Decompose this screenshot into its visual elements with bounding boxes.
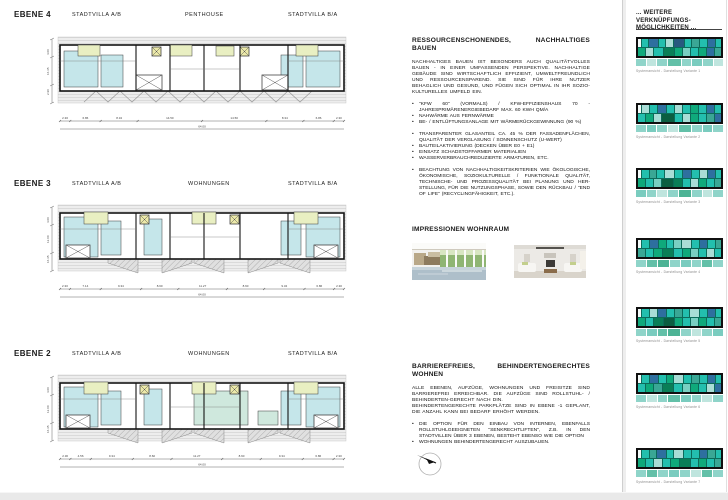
mosaic-cell <box>646 114 653 122</box>
floorplan-level-2: 16.3512.004.002.304.569.348.6011.278.609… <box>44 366 360 478</box>
sustainability-bullets-energy: "KFW 60" (VORMALS) / KFW-EFFIZIENSHAUS 7… <box>412 102 590 126</box>
facade-variant-panel: Systemansicht - Darstellung Variante 7 <box>636 448 723 484</box>
facade-mosaic <box>636 168 723 189</box>
mosaic-cell <box>700 375 707 383</box>
mosaic-cell <box>658 395 668 402</box>
mosaic-cell <box>692 39 699 47</box>
mosaic-cell <box>675 114 682 122</box>
impressions-section: IMPRESSIONEN WOHNRAUM <box>412 226 590 238</box>
facade-variant-panel: Systemansicht - Darstellung Variante 6 <box>636 373 723 409</box>
variant-caption: Systemansicht - Darstellung Variante 1 <box>636 69 723 73</box>
mosaic-cell <box>703 125 713 132</box>
level-4-unit-right: STADTVILLA B/A <box>288 12 338 18</box>
page-right-edge <box>726 0 727 500</box>
mosaic-cell <box>680 459 689 467</box>
bottom-strip <box>0 492 728 500</box>
mosaic-cell <box>708 170 715 178</box>
mosaic-cell <box>657 59 667 66</box>
mosaic-cell <box>663 459 670 467</box>
mosaic-cell <box>646 249 653 257</box>
mosaic-cell <box>659 39 666 47</box>
mosaic-cell <box>692 260 702 267</box>
mosaic-cell <box>663 249 674 257</box>
mosaic-cell <box>638 170 641 178</box>
mosaic-cell <box>654 114 661 122</box>
mosaic-base-band <box>636 260 723 267</box>
mosaic-cell <box>691 105 698 113</box>
facade-mosaic <box>636 238 723 259</box>
mosaic-cell <box>683 249 690 257</box>
mosaic-cell <box>713 329 723 336</box>
mosaic-cell <box>683 105 690 113</box>
variant-caption: Systemansicht - Darstellung Variante 5 <box>636 339 723 343</box>
level-2-unit-left: STADTVILLA A/B <box>72 351 121 357</box>
mosaic-cell <box>715 179 721 187</box>
level-4-title: EBENE 4 <box>14 10 51 19</box>
mosaic-cell <box>658 260 670 267</box>
facade-variant-panel: Systemansicht - Darstellung Variante 3 <box>636 168 723 204</box>
mosaic-cell <box>649 39 657 47</box>
mosaic-cell <box>683 309 690 317</box>
svg-text:6.86: 6.86 <box>315 454 321 458</box>
facade-variant-panel: Systemansicht - Darstellung Variante 1 <box>636 37 723 73</box>
level-2-title: EBENE 2 <box>14 349 51 358</box>
mosaic-cell <box>654 179 661 187</box>
mosaic-cell <box>699 384 706 392</box>
mosaic-cell <box>716 309 722 317</box>
svg-text:9.34: 9.34 <box>109 454 115 458</box>
mosaic-cell <box>682 240 691 248</box>
svg-text:16.35: 16.35 <box>46 425 50 433</box>
accessibility-bullets: DIE OPTION FÜR DEN EINBAU VON INTERNEN, … <box>412 422 590 446</box>
level-3-unit-left: STADTVILLA A/B <box>72 181 121 187</box>
svg-text:16.35: 16.35 <box>46 255 50 263</box>
svg-text:8.60: 8.60 <box>149 454 155 458</box>
sustainability-intro: NACHHALTIGES BAUEN IST BESONDERS AUCH QU… <box>412 60 590 96</box>
photo-interior-window-view <box>412 243 486 280</box>
mosaic-cell <box>636 395 646 402</box>
mosaic-cell <box>702 329 712 336</box>
mosaic-cell <box>700 170 707 178</box>
facade-mosaic <box>636 448 723 469</box>
svg-text:11.27: 11.27 <box>193 454 201 458</box>
mosaic-cell <box>708 39 715 47</box>
mosaic-cell <box>638 309 641 317</box>
mosaic-cell <box>638 240 641 248</box>
mosaic-cell <box>683 48 690 56</box>
mosaic-cell <box>666 39 673 47</box>
svg-text:2.30: 2.30 <box>336 454 342 458</box>
mosaic-cell <box>713 395 723 402</box>
mosaic-cell <box>691 114 698 122</box>
mosaic-cell <box>692 240 699 248</box>
mosaic-cell <box>692 329 702 336</box>
facade-variant-panel: Systemansicht - Darstellung Variante 2 <box>636 103 723 139</box>
svg-text:8.34: 8.34 <box>116 116 122 120</box>
svg-text:2.90: 2.90 <box>46 89 50 95</box>
photo-living-room-fireplace <box>514 245 586 278</box>
sidebar-title-line1: ... WEITERE VERKNÜPFUNGS- <box>636 10 691 24</box>
mosaic-cell <box>674 179 682 187</box>
mosaic-cell <box>638 39 641 47</box>
mosaic-cell <box>636 329 646 336</box>
mosaic-cell <box>642 309 649 317</box>
mosaic-cell <box>692 190 702 197</box>
mosaic-cell <box>700 39 707 47</box>
mosaic-cell <box>668 329 680 336</box>
mosaic-cell <box>691 470 701 477</box>
mosaic-cell <box>659 375 666 383</box>
mosaic-base-band <box>636 59 723 66</box>
mosaic-cell <box>675 48 682 56</box>
mosaic-cell <box>667 240 674 248</box>
mosaic-cell <box>715 384 721 392</box>
svg-text:64.00: 64.00 <box>198 463 206 467</box>
svg-text:8.60: 8.60 <box>239 454 245 458</box>
mosaic-cell <box>716 39 721 47</box>
mosaic-cell <box>692 450 699 458</box>
mosaic-cell <box>654 48 663 56</box>
facade-variant-panel: Systemansicht - Darstellung Variante 5 <box>636 307 723 343</box>
mosaic-cell <box>713 125 723 132</box>
mosaic-cell <box>679 125 692 132</box>
svg-text:6.86: 6.86 <box>83 116 89 120</box>
mosaic-cell <box>642 105 649 113</box>
bullet-item: DIE OPTION FÜR DEN EINBAU VON INTERNEN, … <box>412 422 590 440</box>
sidebar-title-line2: MÖGLICHKEITEN ... <box>636 25 696 31</box>
mosaic-cell <box>650 309 657 317</box>
mosaic-cell <box>650 450 657 458</box>
mosaic-cell <box>654 249 661 257</box>
mosaic-cell <box>715 459 721 467</box>
mosaic-cell <box>654 318 662 326</box>
mosaic-cell <box>715 48 721 56</box>
mosaic-cell <box>650 240 658 248</box>
svg-text:64.00: 64.00 <box>198 125 206 129</box>
mosaic-cell <box>691 459 698 467</box>
svg-text:8.60: 8.60 <box>243 284 249 288</box>
mosaic-cell <box>667 450 674 458</box>
mosaic-cell <box>657 170 664 178</box>
svg-text:4.00: 4.00 <box>46 49 50 55</box>
mosaic-cell <box>642 375 649 383</box>
mosaic-cell <box>708 309 715 317</box>
mosaic-cell <box>650 105 657 113</box>
mosaic-cell <box>654 459 661 467</box>
variant-caption: Systemansicht - Darstellung Variante 2 <box>636 135 723 139</box>
mosaic-cell <box>707 105 714 113</box>
mosaic-cell <box>682 59 692 66</box>
mosaic-cell <box>638 48 645 56</box>
mosaic-cell <box>700 240 707 248</box>
mosaic-cell <box>636 125 646 132</box>
mosaic-cell <box>692 125 702 132</box>
mosaic-cell <box>691 249 698 257</box>
level-2-unit-mid: WOHNUNGEN <box>188 351 230 357</box>
mosaic-cell <box>674 375 683 383</box>
mosaic-cell <box>642 170 649 178</box>
mosaic-cell <box>699 459 706 467</box>
mosaic-cell <box>699 48 706 56</box>
mosaic-cell <box>683 114 690 122</box>
mosaic-cell <box>691 318 698 326</box>
svg-text:4.56: 4.56 <box>78 454 84 458</box>
svg-text:6.86: 6.86 <box>316 284 322 288</box>
mosaic-cell <box>636 470 646 477</box>
mosaic-cell <box>662 114 673 122</box>
mosaic-cell <box>716 375 721 383</box>
mosaic-base-band <box>636 125 723 132</box>
floorplan-level-4: 2.9016.354.002.306.868.3414.5014.508.346… <box>44 28 360 140</box>
mosaic-cell <box>669 470 679 477</box>
mosaic-cell <box>683 384 690 392</box>
mosaic-cell <box>668 395 680 402</box>
mosaic-cell <box>715 114 721 122</box>
facade-variant-panel: Systemansicht - Darstellung Variante 4 <box>636 238 723 274</box>
mosaic-cell <box>638 459 645 467</box>
accessibility-paragraph-1: ALLE EBENEN, AUFZÜGE, WOHNUNGEN UND FREI… <box>412 386 590 404</box>
mosaic-cell <box>692 170 699 178</box>
mosaic-cell <box>715 105 721 113</box>
mosaic-cell <box>647 395 657 402</box>
mosaic-cell <box>657 125 667 132</box>
presentation-board: EBENE 4 STADTVILLA A/B PENTHOUSE STADTVI… <box>0 0 728 500</box>
mosaic-cell <box>708 375 715 383</box>
mosaic-cell <box>650 375 658 383</box>
mosaic-cell <box>684 450 691 458</box>
bullet-item: BE- / ENTLÜFTUNGSANLAGE MIT WÄRMERÜCKGEW… <box>412 120 590 126</box>
mosaic-cell <box>647 125 657 132</box>
mosaic-cell <box>658 329 668 336</box>
mosaic-cell <box>647 59 657 66</box>
level-4-unit-left: STADTVILLA A/B <box>72 12 121 18</box>
mosaic-cell <box>642 39 649 47</box>
svg-text:6.86: 6.86 <box>316 116 322 120</box>
bullet-item: TRANSPARENTER GLASANTEIL CA. 45 % DER FA… <box>412 132 590 144</box>
sheet-edge-shadow <box>623 0 626 500</box>
mosaic-cell <box>679 190 692 197</box>
mosaic-base-band <box>636 395 723 402</box>
svg-text:14.50: 14.50 <box>166 116 174 120</box>
svg-text:2.30: 2.30 <box>62 116 68 120</box>
mosaic-base-band <box>636 470 723 477</box>
mosaic-cell <box>681 260 691 267</box>
variant-caption: Systemansicht - Darstellung Variante 4 <box>636 270 723 274</box>
mosaic-cell <box>657 190 667 197</box>
bullet-item: "KFW 60" (VORMALS) / KFW-EFFIZIENSHAUS 7… <box>412 102 590 114</box>
accessibility-title: BARRIEREFREIES, BEHINDERTENGERECHTES WOH… <box>412 363 590 379</box>
mosaic-cell <box>668 125 678 132</box>
sustainability-bullets-criteria: BEACHTUNG VON NACHHALTIGKEITSKRITERIEN W… <box>412 168 590 198</box>
mosaic-cell <box>671 459 680 467</box>
svg-text:4.00: 4.00 <box>46 387 50 393</box>
mosaic-cell <box>657 450 665 458</box>
accessibility-paragraph-2: BEHINDERTENGERECHTE PARKPLÄTZE SIND IN E… <box>412 404 590 416</box>
mosaic-cell <box>667 105 674 113</box>
mosaic-cell <box>707 114 714 122</box>
sidebar-title-rule <box>636 29 722 30</box>
mosaic-cell <box>691 48 698 56</box>
mosaic-cell <box>707 384 714 392</box>
mosaic-cell <box>702 395 712 402</box>
mosaic-base-band <box>636 329 723 336</box>
mosaic-cell <box>675 309 682 317</box>
mosaic-cell <box>646 459 653 467</box>
mosaic-cell <box>691 384 698 392</box>
impressions-title: IMPRESSIONEN WOHNRAUM <box>412 226 590 234</box>
variant-caption: Systemansicht - Darstellung Variante 7 <box>636 480 723 484</box>
mosaic-cell <box>707 249 714 257</box>
svg-text:2.30: 2.30 <box>336 284 342 288</box>
mosaic-cell <box>708 450 715 458</box>
bullet-item: BEACHTUNG VON NACHHALTIGKEITSKRITERIEN W… <box>412 168 590 198</box>
mosaic-cell <box>674 249 681 257</box>
mosaic-cell <box>664 318 675 326</box>
mosaic-cell <box>638 384 645 392</box>
floorplan-level-3: 16.3512.004.002.307.149.348.6011.278.609… <box>44 196 360 308</box>
mosaic-cell <box>647 190 657 197</box>
mosaic-cell <box>714 59 724 66</box>
mosaic-cell <box>638 375 641 383</box>
mosaic-cell <box>642 450 649 458</box>
sustainability-section: RESSOURCENSCHONENDES, NACHHALTIGES BAUEN… <box>412 37 590 204</box>
svg-text:2.30: 2.30 <box>62 284 68 288</box>
mosaic-cell <box>667 375 674 383</box>
svg-text:64.00: 64.00 <box>198 293 206 297</box>
facade-mosaic <box>636 37 723 58</box>
mosaic-cell <box>659 240 666 248</box>
impressions-photos <box>412 243 612 283</box>
level-3-title: EBENE 3 <box>14 179 51 188</box>
svg-text:9.34: 9.34 <box>281 284 287 288</box>
mosaic-cell <box>713 190 723 197</box>
mosaic-cell <box>716 170 721 178</box>
svg-text:8.60: 8.60 <box>157 284 163 288</box>
mosaic-cell <box>646 384 653 392</box>
mosaic-cell <box>636 190 646 197</box>
svg-text:9.34: 9.34 <box>279 454 285 458</box>
mosaic-cell <box>636 59 646 66</box>
mosaic-cell <box>638 179 645 187</box>
mosaic-cell <box>700 450 707 458</box>
level-3-unit-mid: WOHNUNGEN <box>188 181 230 187</box>
mosaic-cell <box>675 105 682 113</box>
mosaic-cell <box>664 48 674 56</box>
mosaic-cell <box>690 309 698 317</box>
mosaic-cell <box>670 260 680 267</box>
level-2-unit-right: STADTVILLA B/A <box>288 351 338 357</box>
mosaic-cell <box>638 249 645 257</box>
bullet-item: WASSERVERBRAUCHREDUZIERTE ARMATUREN, ETC… <box>412 156 590 162</box>
mosaic-cell <box>636 260 646 267</box>
mosaic-cell <box>692 375 699 383</box>
bullet-item: WOHNUNGEN BEHINDERTENGERECHT AUSZUBAUEN. <box>412 440 590 446</box>
mosaic-cell <box>708 240 715 248</box>
mosaic-cell <box>658 105 666 113</box>
mosaic-cell <box>691 179 698 187</box>
mosaic-cell <box>692 59 702 66</box>
facade-mosaic <box>636 307 723 328</box>
mosaic-cell <box>638 318 645 326</box>
mosaic-cell <box>663 384 674 392</box>
mosaic-cell <box>665 170 674 178</box>
mosaic-cell <box>674 39 683 47</box>
svg-text:16.35: 16.35 <box>46 67 50 75</box>
sustainability-title: RESSOURCENSCHONENDES, NACHHALTIGES BAUEN <box>412 37 590 53</box>
mosaic-cell <box>674 240 681 248</box>
svg-text:7.14: 7.14 <box>82 284 88 288</box>
svg-text:2.30: 2.30 <box>62 454 68 458</box>
mosaic-cell <box>699 179 706 187</box>
mosaic-cell <box>699 105 706 113</box>
mosaic-cell <box>700 309 707 317</box>
svg-text:2.30: 2.30 <box>336 116 342 120</box>
mosaic-cell <box>713 470 723 477</box>
mosaic-cell <box>658 309 666 317</box>
mosaic-cell <box>658 470 668 477</box>
mosaic-cell <box>674 384 681 392</box>
mosaic-cell <box>707 179 714 187</box>
facade-mosaic <box>636 103 723 124</box>
mosaic-cell <box>692 395 702 402</box>
mosaic-cell <box>699 318 706 326</box>
mosaic-cell <box>667 309 674 317</box>
mosaic-base-band <box>636 190 723 197</box>
mosaic-cell <box>647 470 657 477</box>
mosaic-cell <box>699 114 706 122</box>
mosaic-cell <box>680 470 690 477</box>
mosaic-cell <box>647 260 657 267</box>
svg-text:11.27: 11.27 <box>199 284 207 288</box>
mosaic-cell <box>683 179 690 187</box>
mosaic-cell <box>707 318 714 326</box>
svg-text:14.50: 14.50 <box>230 116 238 120</box>
accessibility-section: BARRIEREFREIES, BEHINDERTENGERECHTES WOH… <box>412 363 590 452</box>
mosaic-cell <box>713 260 723 267</box>
mosaic-cell <box>668 190 678 197</box>
sustainability-bullets-material: TRANSPARENTER GLASANTEIL CA. 45 % DER FA… <box>412 132 590 162</box>
mosaic-cell <box>638 105 641 113</box>
mosaic-cell <box>675 318 682 326</box>
mosaic-cell <box>703 190 713 197</box>
mosaic-cell <box>683 170 691 178</box>
level-4-unit-mid: PENTHOUSE <box>185 12 224 18</box>
mosaic-cell <box>675 170 682 178</box>
svg-text:12.00: 12.00 <box>46 235 50 243</box>
mosaic-cell <box>638 450 641 458</box>
mosaic-cell <box>646 318 653 326</box>
svg-text:9.34: 9.34 <box>118 284 124 288</box>
mosaic-cell <box>674 450 683 458</box>
mosaic-cell <box>707 459 714 467</box>
mosaic-cell <box>684 375 691 383</box>
level-3-unit-right: STADTVILLA B/A <box>288 181 338 187</box>
mosaic-cell <box>642 240 649 248</box>
mosaic-cell <box>646 179 653 187</box>
mosaic-cell <box>685 39 692 47</box>
mosaic-cell <box>662 179 673 187</box>
mosaic-cell <box>681 395 691 402</box>
mosaic-cell <box>702 260 712 267</box>
mosaic-cell <box>702 470 712 477</box>
svg-text:4.00: 4.00 <box>46 217 50 223</box>
north-arrow-icon <box>414 448 444 478</box>
mosaic-cell <box>715 249 721 257</box>
svg-text:8.34: 8.34 <box>282 116 288 120</box>
mosaic-cell <box>699 249 706 257</box>
mosaic-cell <box>647 329 657 336</box>
mosaic-cell <box>654 384 661 392</box>
